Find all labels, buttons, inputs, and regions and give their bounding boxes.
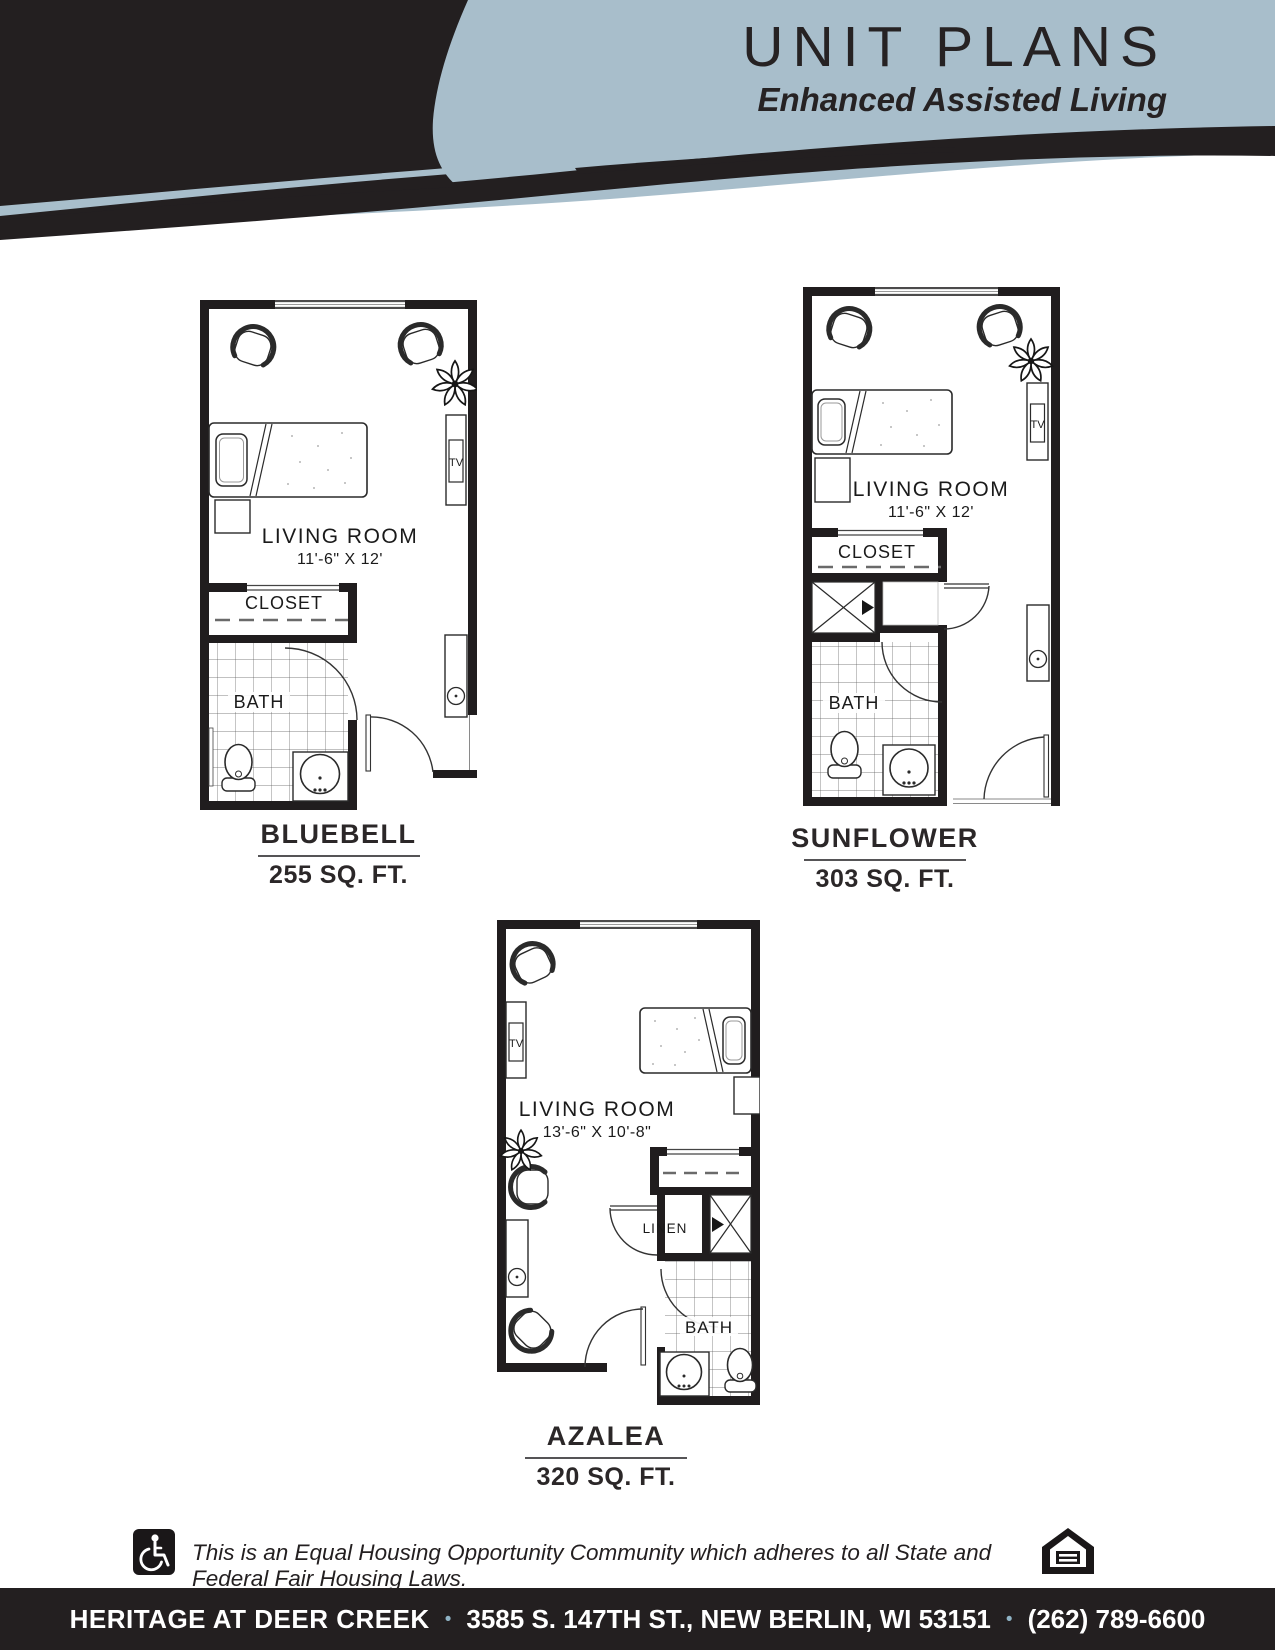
nightstand	[215, 500, 250, 533]
vanity-cabinet	[1027, 605, 1049, 681]
page-subtitle: Enhanced Assisted Living	[742, 82, 1167, 118]
room-label: LIVING ROOM	[519, 1098, 676, 1121]
tv-label: TV	[1030, 419, 1045, 431]
storage-closet	[883, 582, 989, 629]
bed	[209, 423, 367, 497]
linen-closet: LINEN	[610, 1206, 687, 1255]
bed	[812, 390, 952, 454]
tv-cabinet: TV	[446, 415, 466, 505]
armchair	[825, 303, 876, 351]
label-divider	[258, 855, 420, 857]
bluebell-floor-plan: CLOSET BATH	[200, 300, 477, 810]
bullet-separator: •	[1006, 1609, 1013, 1631]
room-dimensions: 11'-6" X 12'	[297, 551, 383, 568]
unit-area: 320 SQ. FT.	[481, 1463, 731, 1492]
room-dimensions: 11'-6" X 12'	[888, 504, 974, 521]
sunflower-floor-plan: CLOSET BATH	[803, 287, 1060, 806]
unit-area: 255 SQ. FT.	[200, 861, 477, 890]
armchair	[505, 937, 558, 988]
nightstand	[734, 1077, 760, 1114]
bath-label: BATH	[234, 692, 285, 712]
armchair	[502, 1304, 557, 1359]
toilet	[828, 732, 861, 779]
room-label: LIVING ROOM	[262, 525, 419, 548]
entry-door	[366, 715, 433, 772]
entry-door	[585, 1307, 646, 1367]
sunflower-label-block: SUNFLOWER 303 SQ. FT.	[760, 823, 1010, 894]
bath-label: BATH	[829, 693, 880, 713]
shower	[710, 1195, 751, 1253]
room-label: LIVING ROOM	[853, 478, 1010, 501]
armchair	[511, 1167, 548, 1208]
bed	[640, 1008, 751, 1073]
unit-area: 303 SQ. FT.	[760, 865, 1010, 894]
closet-label: CLOSET	[838, 542, 916, 562]
sink	[883, 745, 935, 795]
armchair	[395, 319, 446, 367]
fair-housing-row: This is an Equal Housing Opportunity Com…	[0, 1526, 1275, 1580]
storage-door-arc	[944, 586, 989, 629]
brochure-page: UNIT PLANS Enhanced Assisted Living	[0, 0, 1275, 1650]
unit-name: BLUEBELL	[200, 819, 477, 850]
tv-cabinet: TV	[1027, 383, 1048, 460]
nightstand	[815, 458, 850, 502]
wheelchair-icon	[133, 1529, 175, 1575]
sink	[660, 1352, 709, 1396]
fair-housing-text: This is an Equal Housing Opportunity Com…	[192, 1540, 1037, 1592]
phone-number: (262) 789-6600	[1028, 1604, 1206, 1635]
entry-door	[984, 735, 1049, 799]
azalea-floor-plan: LINEN BATH	[497, 920, 760, 1405]
armchair	[229, 321, 280, 369]
closet-label: CLOSET	[245, 593, 323, 613]
vanity-cabinet	[506, 1220, 528, 1297]
grab-bar	[209, 728, 213, 786]
label-divider	[525, 1457, 687, 1459]
linen-label: LINEN	[643, 1221, 688, 1236]
address-bar: HERITAGE AT DEER CREEK • 3585 S. 147TH S…	[0, 1588, 1275, 1650]
street-address: 3585 S. 147TH ST., NEW BERLIN, WI 53151	[466, 1604, 991, 1635]
bullet-separator: •	[445, 1609, 452, 1631]
bath-label: BATH	[685, 1318, 733, 1337]
banner-text-block: UNIT PLANS Enhanced Assisted Living	[742, 18, 1167, 118]
armchair	[974, 301, 1025, 349]
room-dimensions: 13'-6" X 10'-8"	[543, 1124, 652, 1141]
bluebell-label-block: BLUEBELL 255 SQ. FT.	[200, 819, 477, 890]
plant-icon	[1009, 339, 1053, 382]
closet: CLOSET	[215, 593, 348, 620]
page-title: UNIT PLANS	[742, 18, 1167, 78]
azalea-label-block: AZALEA 320 SQ. FT.	[481, 1421, 731, 1492]
toilet	[222, 745, 255, 792]
entry-cabinet	[445, 635, 467, 717]
unit-name: AZALEA	[481, 1421, 731, 1452]
equal-housing-icon	[1042, 1528, 1094, 1574]
tv-label: TV	[509, 1038, 524, 1050]
unit-name: SUNFLOWER	[760, 823, 1010, 854]
tv-label: TV	[449, 457, 464, 469]
label-divider	[804, 859, 966, 861]
shower	[812, 582, 875, 633]
sink	[293, 752, 348, 801]
tv-cabinet: TV	[506, 1002, 526, 1078]
community-name: HERITAGE AT DEER CREEK	[70, 1604, 430, 1635]
